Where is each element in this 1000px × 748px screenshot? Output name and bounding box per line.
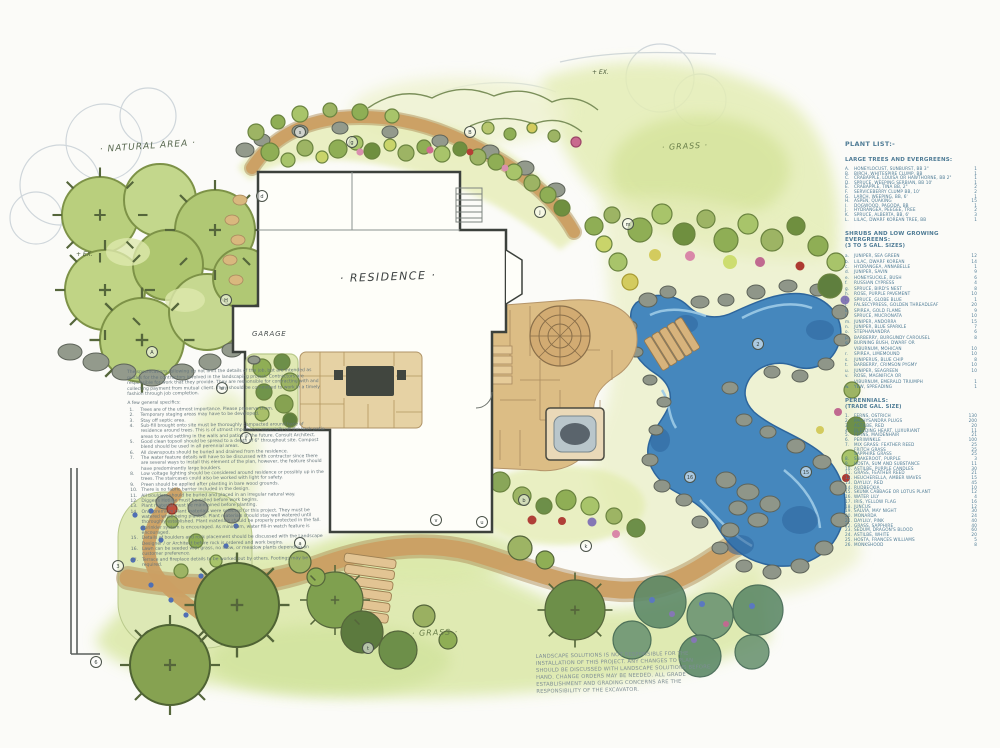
svg-text:v: v (435, 518, 438, 524)
plant-rows: A. HONEYLOCUST, SUNBURST, BB 3" 1 B. BIR… (845, 167, 977, 222)
plant-row: 26. MONKSHOOD 8 (845, 543, 977, 548)
note-number: 7. (128, 456, 141, 472)
note-number: 15. (129, 536, 142, 547)
note-text: Only premium plant materials were select… (141, 507, 326, 536)
note-number: 14. (128, 509, 141, 536)
svg-text:j: j (538, 210, 540, 216)
svg-text:u: u (480, 520, 483, 526)
section-heading: LARGE TREES AND EVERGREENS: (845, 157, 977, 163)
note-number: 4. (128, 424, 141, 440)
note-number: 5. (128, 440, 141, 451)
notes-list: 1. Trees are of the utmost importance. P… (127, 406, 327, 568)
note-item: 17. Terrace and fireplace details to be … (129, 556, 327, 569)
property-line (71, 468, 100, 654)
svg-text:s: s (299, 130, 302, 136)
plant-rows: 1. FERNS, OSTRICH 130 2. PACHYSANDRA PLU… (845, 414, 977, 547)
plant-qty: 1 (965, 384, 977, 389)
plant-name: LILAC, DWARF KOREAN TREE, BB (854, 218, 965, 223)
section-shrubs: SHRUBS AND LOW GROWING EVERGREENS: (3 TO… (845, 231, 977, 389)
plant-qty: 8 (965, 543, 977, 548)
natural-area-label: · NATURAL AREA · (100, 138, 197, 155)
svg-text:b: b (522, 498, 525, 504)
section-large-trees: LARGE TREES AND EVERGREENS: A. HONEYLOCU… (845, 157, 977, 222)
note-number: 17. (129, 558, 142, 569)
svg-text:k: k (585, 544, 588, 550)
specification-notes: The specifications following do not limi… (127, 368, 327, 568)
existing-tree-label-2: + EX. (592, 69, 609, 76)
plant-row: L. LILAC, DWARF KOREAN TREE, BB 1 (845, 218, 977, 223)
plant-key: w. (845, 384, 854, 389)
grass-label-bottom: · GRASS · (412, 627, 459, 638)
svg-text:B: B (468, 130, 472, 136)
notes-list-title: A few general specifics: (127, 398, 325, 406)
plant-list-title: PLANT LIST:- (845, 140, 977, 148)
note-number: 8. (128, 472, 141, 483)
section-subheading: (TRADE GAL. SIZE) (845, 404, 977, 410)
garage-label: GARAGE (252, 330, 287, 338)
section-heading: SHRUBS AND LOW GROWING EVERGREENS: (845, 231, 977, 243)
note-text: Terrace and fireplace details to be work… (142, 556, 327, 569)
plant-name: YEW, SPREADING (854, 384, 965, 389)
svg-text:H: H (224, 298, 228, 304)
section-subheading: (3 TO 5 GAL. SIZES) (845, 243, 977, 249)
svg-text:g: g (350, 140, 353, 146)
plant-row: w. YEW, SPREADING 1 (845, 384, 977, 389)
bay-window (506, 250, 522, 304)
notes-intro: The specifications following do not limi… (127, 368, 325, 398)
section-perennials: PERENNIALS: (TRADE GAL. SIZE) 1. FERNS, … (845, 398, 977, 547)
note-item: 14. Only premium plant materials were se… (128, 507, 326, 536)
svg-text:6: 6 (94, 660, 97, 666)
svg-text:15: 15 (803, 470, 809, 476)
plant-list: PLANT LIST:- LARGE TREES AND EVERGREENS:… (845, 140, 977, 547)
svg-text:A: A (150, 350, 154, 356)
plant-name: MONKSHOOD (854, 543, 965, 548)
plant-rows: a. JUNIPER, SEA GREEN 12 b. LILAC, DWARF… (845, 253, 977, 389)
svg-text:3: 3 (116, 564, 119, 570)
svg-text:2: 2 (756, 342, 759, 348)
svg-text:t: t (367, 646, 369, 652)
spa (546, 408, 604, 460)
plant-qty: 1 (965, 218, 977, 223)
landscape-plan-sheet: · NATURAL AREA · · RESIDENCE · GARAGE · … (0, 0, 1000, 748)
plant-key: L. (845, 218, 854, 223)
svg-text:m: m (626, 222, 631, 228)
note-number: 16. (129, 547, 142, 558)
disclaimer-text: LANDSCAPE SOLUTIONS IS NOT RESPONSIBLE F… (536, 650, 719, 696)
plant-key: 26. (845, 543, 854, 548)
svg-text:16: 16 (687, 475, 693, 481)
svg-text:d: d (260, 194, 263, 200)
existing-tree-label-1: + EX. (76, 251, 93, 258)
